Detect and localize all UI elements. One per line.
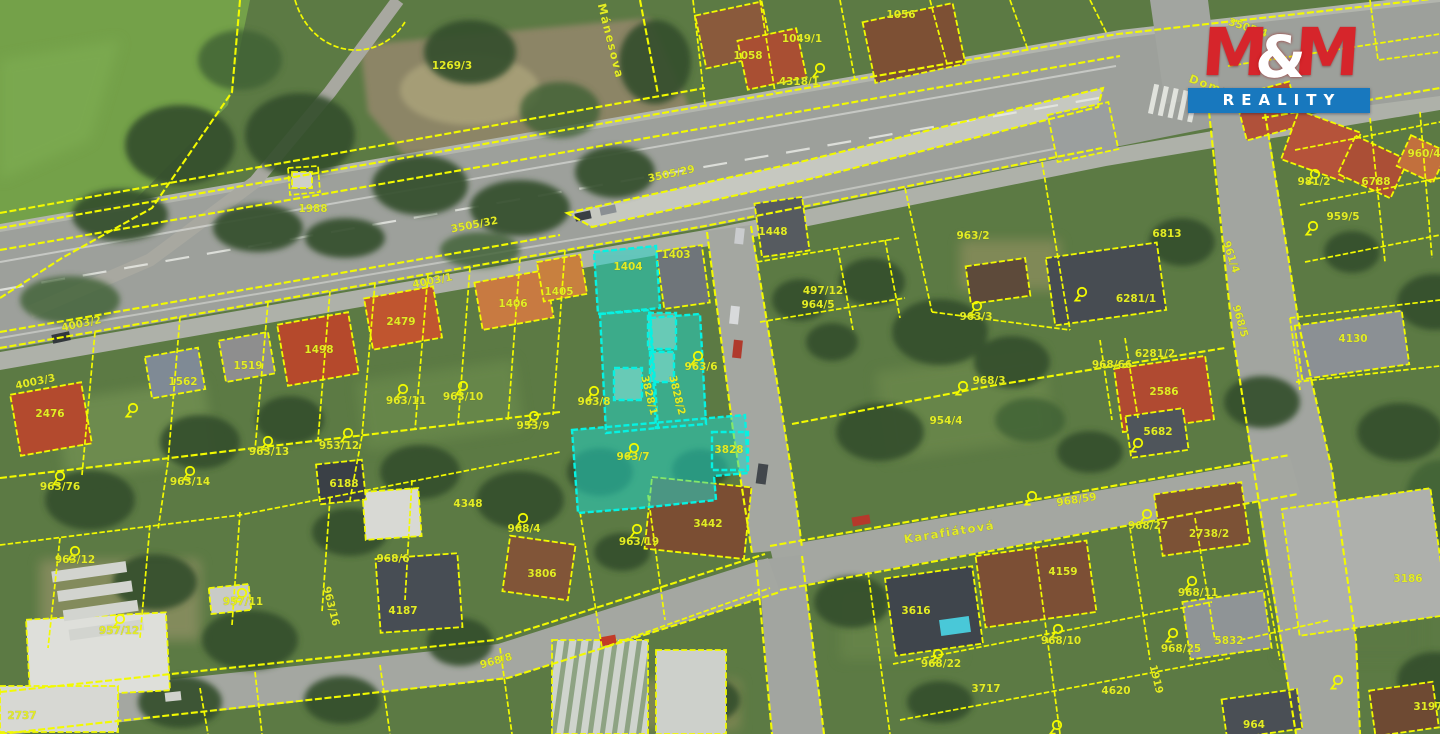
- parcel-label: 968/3: [972, 375, 1005, 387]
- parcel-label: 964/5: [801, 299, 834, 311]
- parcel-label: 963/10: [443, 391, 483, 403]
- parcel-label: 5832: [1214, 635, 1243, 647]
- parcel-label: 963/11: [386, 395, 426, 407]
- logo-reality-band: REALITY: [1188, 88, 1370, 113]
- parcel-label: 4348: [453, 498, 482, 510]
- logo-mm-text: M&M: [1186, 22, 1372, 86]
- parcel-label: 953/9: [516, 420, 549, 432]
- parcel-label: 968/66: [1092, 359, 1132, 371]
- parcel-label: 3828: [714, 444, 743, 456]
- parcel-label: 968/25: [1161, 643, 1201, 655]
- parcel-label: 2586: [1149, 386, 1178, 398]
- parcel-label: 497/12: [803, 285, 843, 297]
- parcel-label: 2738/2: [1189, 528, 1229, 540]
- parcel-label: 1049/1: [782, 33, 822, 45]
- parcel-label: 2479: [386, 316, 415, 328]
- parcel-label: 1988: [298, 203, 327, 215]
- parcel-label: 963/7: [616, 451, 649, 463]
- parcel-label: 6281/1: [1116, 293, 1156, 305]
- parcel-label: 968/10: [1041, 635, 1081, 647]
- logo-ampersand: &: [1253, 28, 1304, 86]
- parcel-label: 3616: [901, 605, 930, 617]
- parcel-label: 957/11: [223, 596, 263, 608]
- parcel-label: 968/6: [376, 553, 409, 565]
- parcel-label: 963/2: [956, 230, 989, 242]
- mm-reality-logo: M&M REALITY: [1188, 22, 1370, 113]
- parcel-label: 957/12: [99, 625, 139, 637]
- parcel-label: 2737: [7, 710, 36, 722]
- parcel-label: 1448: [758, 226, 787, 238]
- parcel-label: 4187: [388, 605, 417, 617]
- parcel-label: 1519: [233, 360, 262, 372]
- parcel-label: 1403: [661, 249, 690, 261]
- parcel-label: 4620: [1101, 685, 1130, 697]
- parcel-label: 954/4: [929, 415, 962, 427]
- parcel-label: 4159: [1048, 566, 1077, 578]
- parcel-label: 968/27: [1128, 520, 1168, 532]
- parcel-label: 6188: [329, 478, 358, 490]
- parcel-label: 963/19: [619, 536, 659, 548]
- parcel-label: 1498: [304, 344, 333, 356]
- parcel-label: 959/5: [1326, 211, 1359, 223]
- parcel-label: 981/2: [1297, 176, 1330, 188]
- parcel-label: 1058: [733, 50, 762, 62]
- parcel-label: 2476: [35, 408, 64, 420]
- parcel-label: 3442: [693, 518, 722, 530]
- parcel-label: 963/8: [577, 396, 610, 408]
- parcel-label: 3186: [1393, 573, 1422, 585]
- parcel-label: 963/76: [40, 481, 80, 493]
- parcel-label: 968/4: [507, 523, 540, 535]
- parcel-label: 3806: [527, 568, 556, 580]
- parcel-label: 5682: [1143, 426, 1172, 438]
- parcel-label: 6788: [1361, 176, 1390, 188]
- parcel-label: 4130: [1338, 333, 1367, 345]
- parcel-label: 1562: [168, 376, 197, 388]
- parcel-label: 6281/2: [1135, 348, 1175, 360]
- parcel-label: 968/11: [1178, 587, 1218, 599]
- parcel-label: 6813: [1152, 228, 1181, 240]
- parcel-label: 953/12: [319, 440, 359, 452]
- parcel-label: 1406: [498, 298, 527, 310]
- parcel-label: 1404: [613, 261, 642, 273]
- parcel-label: 963/12: [55, 554, 95, 566]
- parcel-label: 1056: [886, 9, 915, 21]
- parcel-label: 4318/1: [779, 76, 819, 88]
- parcel-label: 1269/3: [432, 60, 472, 72]
- parcel-label: 3717: [971, 683, 1000, 695]
- parcel-label: 968/22: [921, 658, 961, 670]
- parcel-label: 963/14: [170, 476, 210, 488]
- parcel-label: 1405: [544, 286, 573, 298]
- map-screenshot: 3505/43505/293505/324003/14003/24003/312…: [0, 0, 1440, 734]
- parcel-label: 963/13: [249, 446, 289, 458]
- parcel-label: 3197: [1413, 701, 1440, 713]
- parcel-label: 960/4: [1407, 148, 1440, 160]
- parcel-label: 964: [1243, 719, 1265, 731]
- parcel-label: 963/3: [959, 311, 992, 323]
- parcel-label: 963/6: [684, 361, 717, 373]
